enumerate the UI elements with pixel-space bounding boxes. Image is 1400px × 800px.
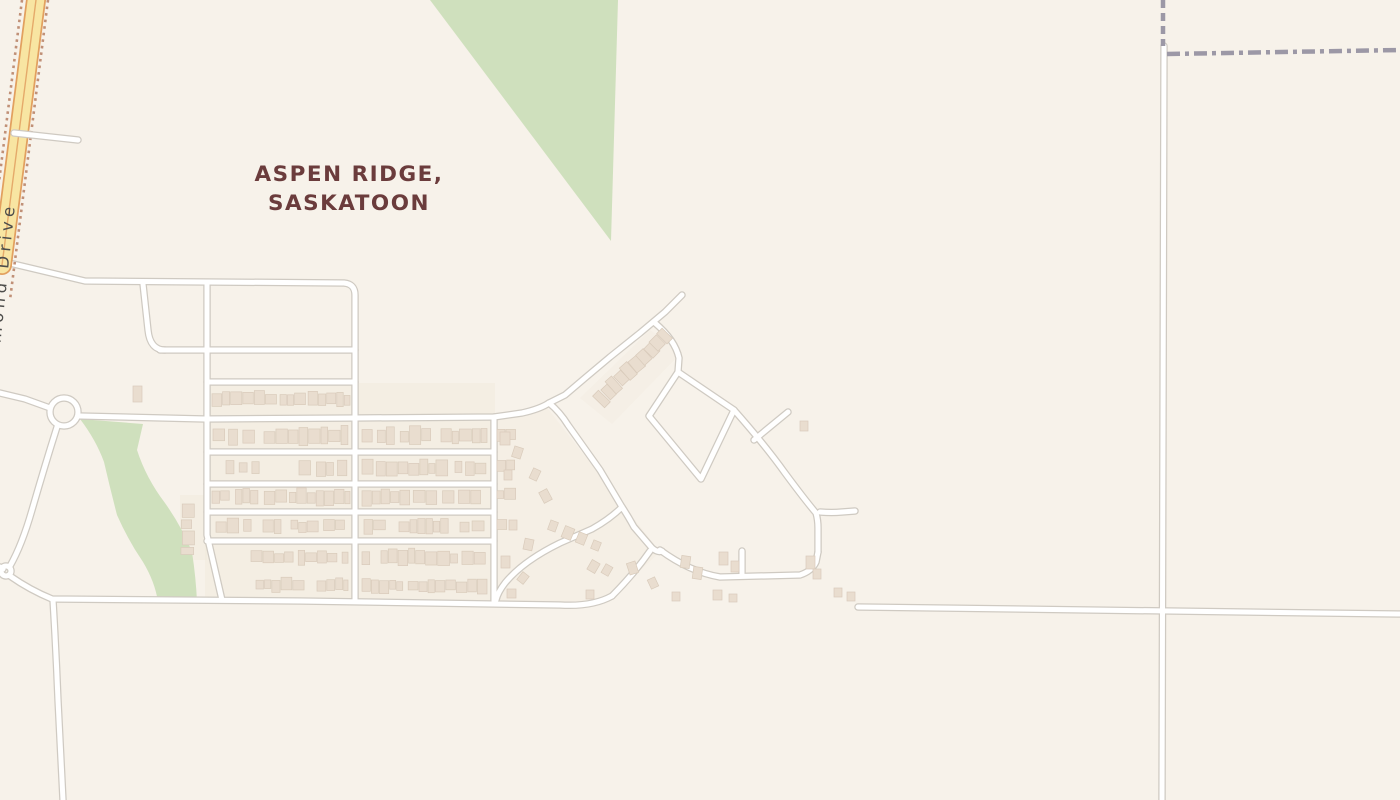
building	[647, 577, 658, 589]
building	[398, 550, 408, 565]
building	[362, 552, 370, 565]
building	[336, 578, 343, 590]
building	[443, 491, 454, 503]
building	[420, 459, 428, 475]
building	[264, 432, 275, 444]
building	[371, 580, 378, 593]
building	[362, 491, 371, 506]
building	[252, 462, 259, 474]
building	[400, 490, 410, 505]
building	[287, 395, 293, 405]
building	[435, 581, 444, 592]
building	[309, 429, 320, 443]
building	[216, 522, 226, 532]
building	[500, 432, 510, 445]
building	[362, 429, 372, 442]
building	[834, 588, 842, 597]
building	[291, 520, 298, 529]
boundary-horizontal	[1167, 50, 1400, 54]
building	[413, 490, 425, 502]
building	[397, 582, 403, 591]
building	[713, 590, 722, 600]
building	[344, 580, 348, 591]
building	[416, 551, 425, 564]
building	[327, 462, 334, 475]
building	[221, 491, 230, 500]
building	[362, 459, 373, 474]
building	[441, 429, 451, 442]
building	[719, 552, 728, 565]
building	[390, 580, 396, 589]
building	[847, 592, 855, 601]
building	[307, 521, 318, 532]
building	[399, 522, 409, 532]
building	[338, 460, 347, 475]
building	[446, 580, 456, 590]
building	[462, 551, 473, 564]
building	[460, 522, 469, 532]
building	[800, 421, 808, 431]
building	[376, 462, 385, 476]
building	[263, 520, 273, 532]
roundabout-main	[50, 398, 78, 426]
building	[318, 551, 327, 563]
building	[672, 592, 680, 601]
building	[289, 492, 295, 502]
building	[345, 491, 350, 503]
building	[324, 491, 333, 506]
building	[335, 520, 344, 529]
building	[452, 431, 458, 443]
building	[182, 504, 194, 517]
building	[321, 427, 328, 444]
building	[226, 461, 234, 474]
building	[229, 429, 238, 445]
building	[243, 489, 250, 503]
building	[374, 520, 386, 530]
building	[410, 520, 417, 533]
map-canvas[interactable]: ASPEN RIDGE, SASKATOON McOrmond Drive	[0, 0, 1400, 800]
building	[274, 520, 281, 534]
building	[306, 553, 317, 562]
building	[276, 429, 287, 443]
building	[455, 461, 462, 472]
building	[293, 581, 304, 590]
building	[472, 429, 480, 443]
building	[299, 428, 308, 446]
greenway-strip	[80, 419, 197, 602]
building	[295, 393, 306, 405]
building	[813, 569, 821, 579]
building	[227, 518, 238, 533]
building	[731, 561, 739, 572]
building	[504, 470, 512, 480]
building	[438, 551, 450, 565]
building	[418, 519, 425, 534]
building	[276, 490, 287, 502]
road-casing-layer	[0, 46, 1400, 800]
building	[497, 520, 507, 530]
neighbourhood-label-line2: SASKATOON	[268, 191, 430, 216]
building	[680, 555, 691, 568]
building	[477, 579, 487, 594]
building	[459, 429, 471, 441]
building	[272, 580, 280, 592]
building	[307, 493, 315, 503]
building	[507, 460, 515, 470]
building	[441, 519, 449, 534]
building	[335, 489, 344, 503]
building	[324, 520, 335, 531]
building	[409, 548, 415, 563]
building	[436, 460, 448, 476]
building	[213, 429, 225, 441]
building	[254, 391, 264, 405]
boundary-layer	[1163, 0, 1400, 54]
building	[299, 461, 310, 475]
building	[341, 425, 348, 444]
building	[386, 462, 397, 476]
building	[409, 463, 419, 475]
building	[244, 519, 251, 531]
building	[182, 531, 194, 545]
building	[523, 538, 534, 551]
building	[474, 552, 485, 564]
building	[133, 386, 142, 402]
building	[468, 579, 477, 592]
building	[181, 520, 191, 529]
building	[212, 394, 222, 407]
building	[426, 491, 437, 505]
building	[275, 554, 284, 563]
building	[239, 463, 247, 472]
building	[327, 580, 335, 591]
map-viewport[interactable]: ASPEN RIDGE, SASKATOON McOrmond Drive	[0, 0, 1400, 800]
building	[264, 491, 275, 504]
building	[390, 492, 398, 503]
building	[329, 430, 340, 441]
building	[285, 552, 294, 562]
building	[381, 489, 389, 504]
building	[281, 577, 292, 590]
building	[299, 522, 306, 532]
building	[316, 491, 323, 506]
building	[308, 391, 317, 405]
building	[409, 426, 420, 445]
building	[471, 490, 481, 504]
building	[386, 427, 394, 445]
building	[223, 392, 230, 405]
building	[419, 582, 427, 592]
building	[400, 431, 408, 442]
building	[327, 553, 336, 562]
north-south-road-east	[1162, 46, 1164, 800]
building	[501, 556, 510, 568]
building	[181, 547, 194, 554]
building	[251, 490, 258, 503]
building	[265, 580, 271, 589]
building	[327, 393, 336, 404]
building	[422, 429, 431, 441]
building	[342, 552, 348, 563]
park-triangle	[430, 0, 618, 241]
building	[729, 594, 737, 602]
diamond-loop-casing	[649, 372, 734, 479]
building	[497, 491, 504, 499]
building	[231, 392, 242, 405]
building	[297, 488, 306, 503]
building	[388, 549, 397, 563]
building	[692, 566, 703, 579]
building	[362, 579, 370, 592]
building	[377, 430, 385, 442]
building	[263, 551, 274, 563]
building	[318, 394, 325, 405]
building	[379, 581, 388, 594]
building	[466, 462, 475, 476]
building	[372, 491, 380, 504]
building	[364, 520, 373, 535]
building	[451, 554, 458, 563]
building	[505, 488, 516, 499]
building	[456, 582, 466, 592]
building	[316, 462, 325, 476]
building	[243, 392, 253, 403]
building	[236, 489, 242, 504]
building	[337, 392, 343, 406]
building	[243, 430, 255, 443]
building	[280, 395, 286, 406]
building	[481, 428, 487, 442]
neighbourhood-label-line1: ASPEN RIDGE,	[255, 162, 444, 187]
building	[507, 589, 516, 598]
building	[265, 395, 276, 404]
east-spur	[820, 511, 855, 513]
building	[433, 521, 439, 532]
building	[586, 590, 594, 599]
east-road	[858, 607, 1400, 614]
building	[806, 556, 815, 569]
building	[426, 519, 432, 534]
building	[458, 490, 469, 503]
building	[251, 551, 262, 562]
building	[426, 552, 437, 565]
building	[344, 395, 350, 405]
building	[256, 580, 264, 589]
building	[475, 463, 486, 474]
building	[317, 581, 326, 591]
building	[381, 551, 387, 563]
building	[408, 582, 418, 590]
building	[398, 462, 408, 474]
building	[212, 491, 220, 503]
building	[298, 550, 304, 565]
building	[472, 521, 484, 531]
building	[428, 580, 434, 593]
building	[288, 430, 298, 443]
building	[509, 520, 517, 530]
building	[429, 464, 435, 474]
